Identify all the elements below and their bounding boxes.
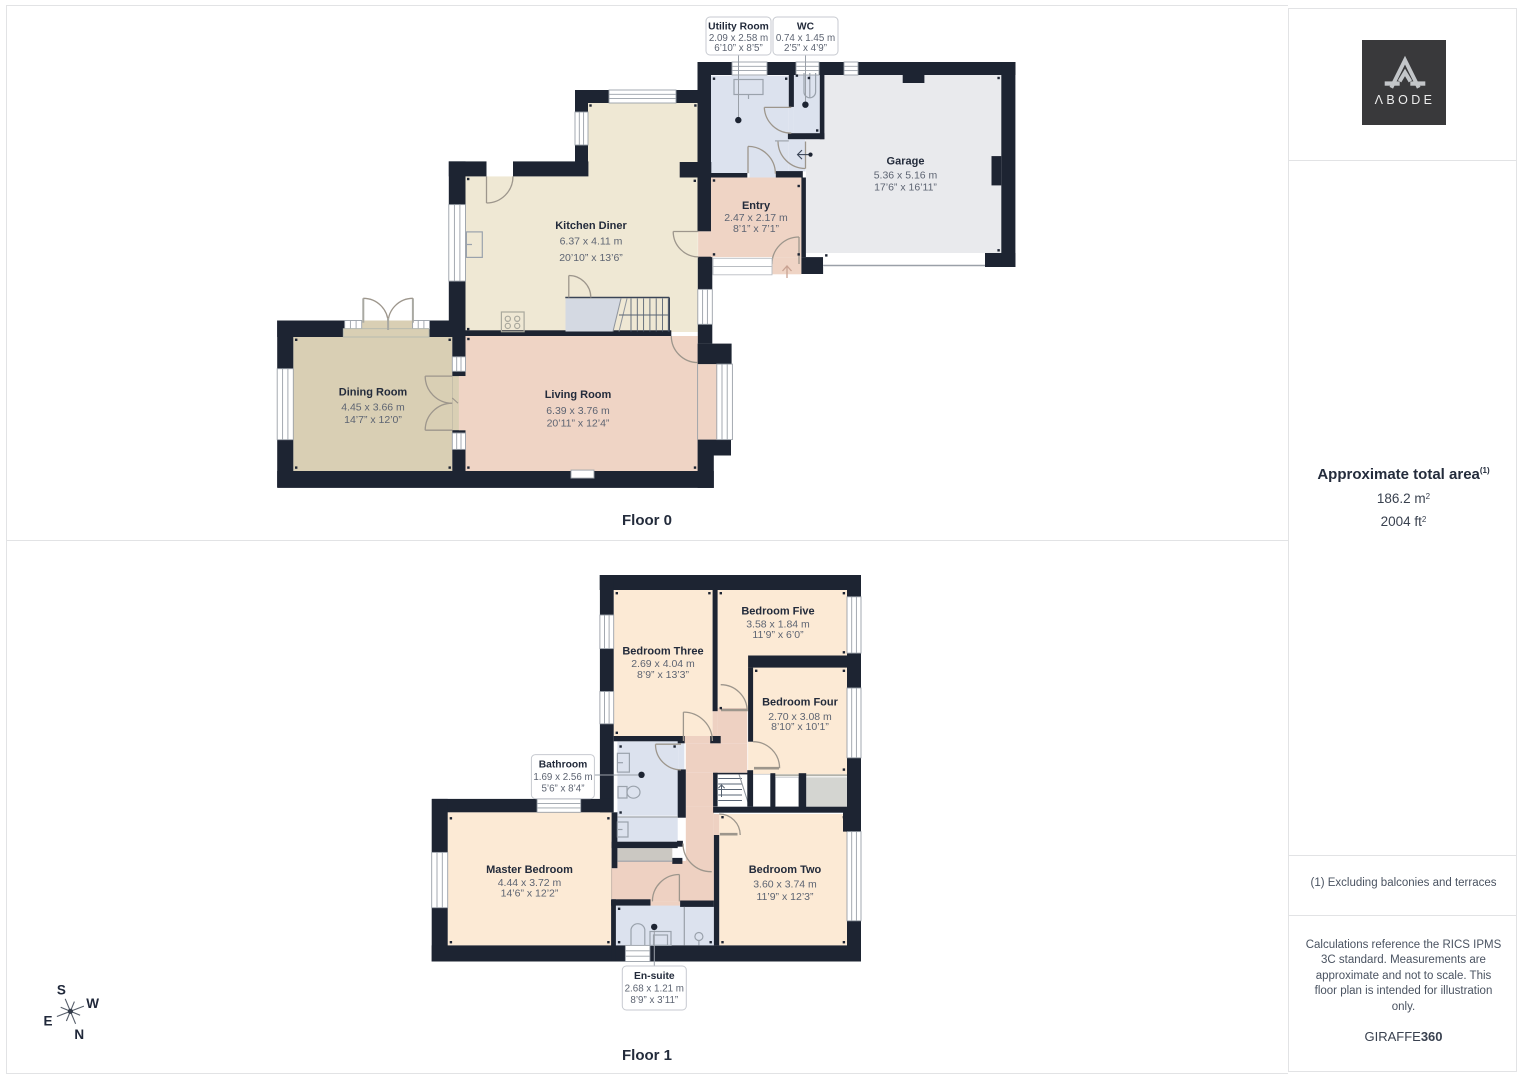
- svg-text:2’5” x 4’9”: 2’5” x 4’9”: [784, 43, 827, 54]
- svg-text:ΛBODE: ΛBODE: [1375, 93, 1436, 107]
- svg-text:5.36 x 5.16 m: 5.36 x 5.16 m: [874, 170, 938, 182]
- svg-text:W: W: [86, 996, 99, 1011]
- svg-text:17’6” x 16’11”: 17’6” x 16’11”: [874, 182, 937, 194]
- svg-text:Bedroom Four: Bedroom Four: [762, 697, 838, 709]
- svg-text:11’9” x 12’3”: 11’9” x 12’3”: [756, 891, 814, 903]
- svg-text:11’9” x 6’0”: 11’9” x 6’0”: [752, 629, 804, 641]
- svg-text:8’9” x 3’11”: 8’9” x 3’11”: [630, 995, 678, 1006]
- svg-text:6.37 x 4.11 m: 6.37 x 4.11 m: [560, 236, 623, 248]
- svg-text:Living Room: Living Room: [545, 389, 612, 401]
- svg-text:WC: WC: [797, 22, 815, 33]
- svg-text:Bedroom Three: Bedroom Three: [622, 646, 703, 658]
- svg-text:2.68 x 1.21 m: 2.68 x 1.21 m: [625, 984, 684, 995]
- svg-text:E: E: [43, 1014, 52, 1029]
- svg-text:S: S: [57, 983, 66, 998]
- svg-text:N: N: [74, 1027, 84, 1042]
- svg-text:20’11” x 12’4”: 20’11” x 12’4”: [547, 418, 610, 430]
- svg-text:14’7” x 12’0”: 14’7” x 12’0”: [344, 414, 402, 426]
- svg-text:20’10” x 13’6”: 20’10” x 13’6”: [559, 252, 623, 264]
- svg-text:Bedroom Two: Bedroom Two: [749, 864, 822, 876]
- svg-text:4.45 x 3.66 m: 4.45 x 3.66 m: [341, 402, 405, 414]
- svg-text:Bathroom: Bathroom: [539, 760, 588, 771]
- svg-text:1.69 x 2.56 m: 1.69 x 2.56 m: [533, 772, 592, 783]
- svg-text:3.60 x 3.74 m: 3.60 x 3.74 m: [753, 879, 817, 891]
- svg-text:8’10” x 10’1”: 8’10” x 10’1”: [771, 721, 829, 733]
- svg-text:Bedroom Five: Bedroom Five: [741, 606, 814, 618]
- svg-text:8’9” x 13’3”: 8’9” x 13’3”: [637, 669, 689, 681]
- svg-text:8’1” x 7’1”: 8’1” x 7’1”: [733, 223, 780, 235]
- svg-text:En-suite: En-suite: [634, 971, 675, 982]
- svg-text:5’6” x 8’4”: 5’6” x 8’4”: [541, 784, 584, 795]
- svg-text:Dining Room: Dining Room: [339, 387, 408, 399]
- svg-text:Utility Room: Utility Room: [708, 22, 769, 33]
- svg-text:Master Bedroom: Master Bedroom: [486, 864, 573, 876]
- svg-text:Garage: Garage: [887, 156, 925, 168]
- svg-text:Floor 0: Floor 0: [622, 512, 672, 529]
- svg-text:6.39 x 3.76 m: 6.39 x 3.76 m: [546, 405, 610, 417]
- svg-text:Kitchen Diner: Kitchen Diner: [555, 220, 627, 232]
- svg-text:14’6” x 12’2”: 14’6” x 12’2”: [501, 888, 559, 900]
- svg-text:Floor 1: Floor 1: [622, 1047, 672, 1064]
- svg-text:Entry: Entry: [742, 200, 771, 212]
- svg-text:6’10” x 8’5”: 6’10” x 8’5”: [714, 43, 762, 54]
